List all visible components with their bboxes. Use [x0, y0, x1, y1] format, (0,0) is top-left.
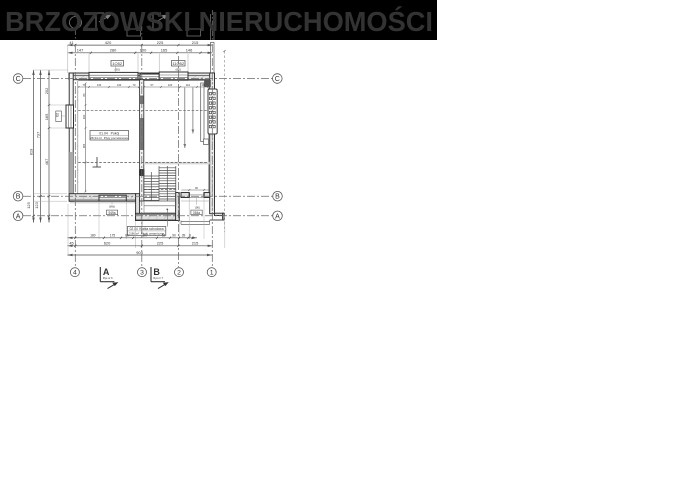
svg-text:(60): (60)	[115, 67, 120, 71]
svg-text:C: C	[275, 76, 280, 83]
svg-text:A: A	[16, 213, 21, 220]
svg-text:B: B	[153, 267, 160, 277]
svg-text:165: 165	[161, 48, 168, 53]
svg-text:620: 620	[104, 241, 111, 246]
svg-text:225: 225	[157, 241, 164, 246]
svg-text:39: 39	[182, 234, 186, 238]
svg-text:280: 280	[110, 48, 117, 53]
svg-text:120: 120	[168, 83, 173, 87]
svg-text:Rys.nr 6: Rys.nr 6	[103, 276, 113, 280]
svg-text:(90): (90)	[195, 206, 200, 210]
svg-text:202: 202	[44, 88, 49, 95]
svg-text:8: 8	[189, 234, 191, 238]
svg-text:B: B	[16, 194, 21, 201]
svg-text:365: 365	[82, 143, 86, 148]
svg-text:307: 307	[142, 234, 148, 238]
svg-text:225: 225	[157, 40, 164, 45]
svg-text:B: B	[275, 194, 280, 201]
svg-text:60: 60	[125, 234, 129, 238]
svg-text:737: 737	[36, 132, 41, 139]
svg-text:200: 200	[82, 114, 86, 119]
svg-text:90: 90	[172, 234, 176, 238]
svg-text:054a: 054a	[193, 211, 200, 215]
svg-text:165: 165	[44, 114, 49, 121]
svg-text:147: 147	[77, 48, 84, 53]
svg-text:01.04 Pokój: 01.04 Pokój	[99, 131, 119, 135]
svg-text:4: 4	[73, 270, 77, 277]
svg-text:52: 52	[162, 234, 166, 238]
svg-text:O2: O2	[56, 113, 60, 117]
svg-text:Rys.nr 7: Rys.nr 7	[153, 276, 163, 280]
svg-text:45: 45	[69, 241, 73, 246]
svg-text:467: 467	[44, 159, 49, 166]
svg-text:C: C	[16, 76, 21, 83]
svg-text:3: 3	[140, 270, 144, 277]
svg-text:41: 41	[69, 40, 73, 45]
svg-text:130: 130	[97, 83, 102, 87]
svg-text:2: 2	[177, 270, 181, 277]
svg-text:904: 904	[136, 250, 143, 255]
svg-text:123: 123	[34, 202, 39, 209]
svg-text:125: 125	[26, 202, 31, 209]
svg-text:180: 180	[90, 234, 96, 238]
svg-text:02.04 Klatka schodowa: 02.04 Klatka schodowa	[130, 227, 164, 231]
svg-text:949a: 949a	[108, 211, 115, 215]
svg-text:1O52: 1O52	[112, 61, 123, 66]
svg-text:146: 146	[186, 48, 193, 53]
svg-text:BRZOZOWSKI NIERUCHOMOŚCI: BRZOZOWSKI NIERUCHOMOŚCI	[5, 6, 433, 37]
svg-text:175: 175	[110, 234, 116, 238]
svg-text:28,34 m² Płyty porcelanowe: 28,34 m² Płyty porcelanowe	[90, 136, 128, 140]
svg-text:819: 819	[29, 149, 34, 156]
svg-text:100: 100	[140, 48, 147, 53]
svg-text:215: 215	[192, 40, 199, 45]
svg-text:130: 130	[117, 83, 122, 87]
svg-text:215: 215	[192, 241, 199, 246]
svg-text:1: 1	[210, 270, 214, 277]
svg-text:110: 110	[186, 83, 191, 87]
svg-text:(90k): (90k)	[109, 205, 115, 209]
svg-text:A: A	[275, 213, 280, 220]
svg-text:420: 420	[105, 40, 112, 45]
svg-text:A: A	[103, 267, 110, 277]
